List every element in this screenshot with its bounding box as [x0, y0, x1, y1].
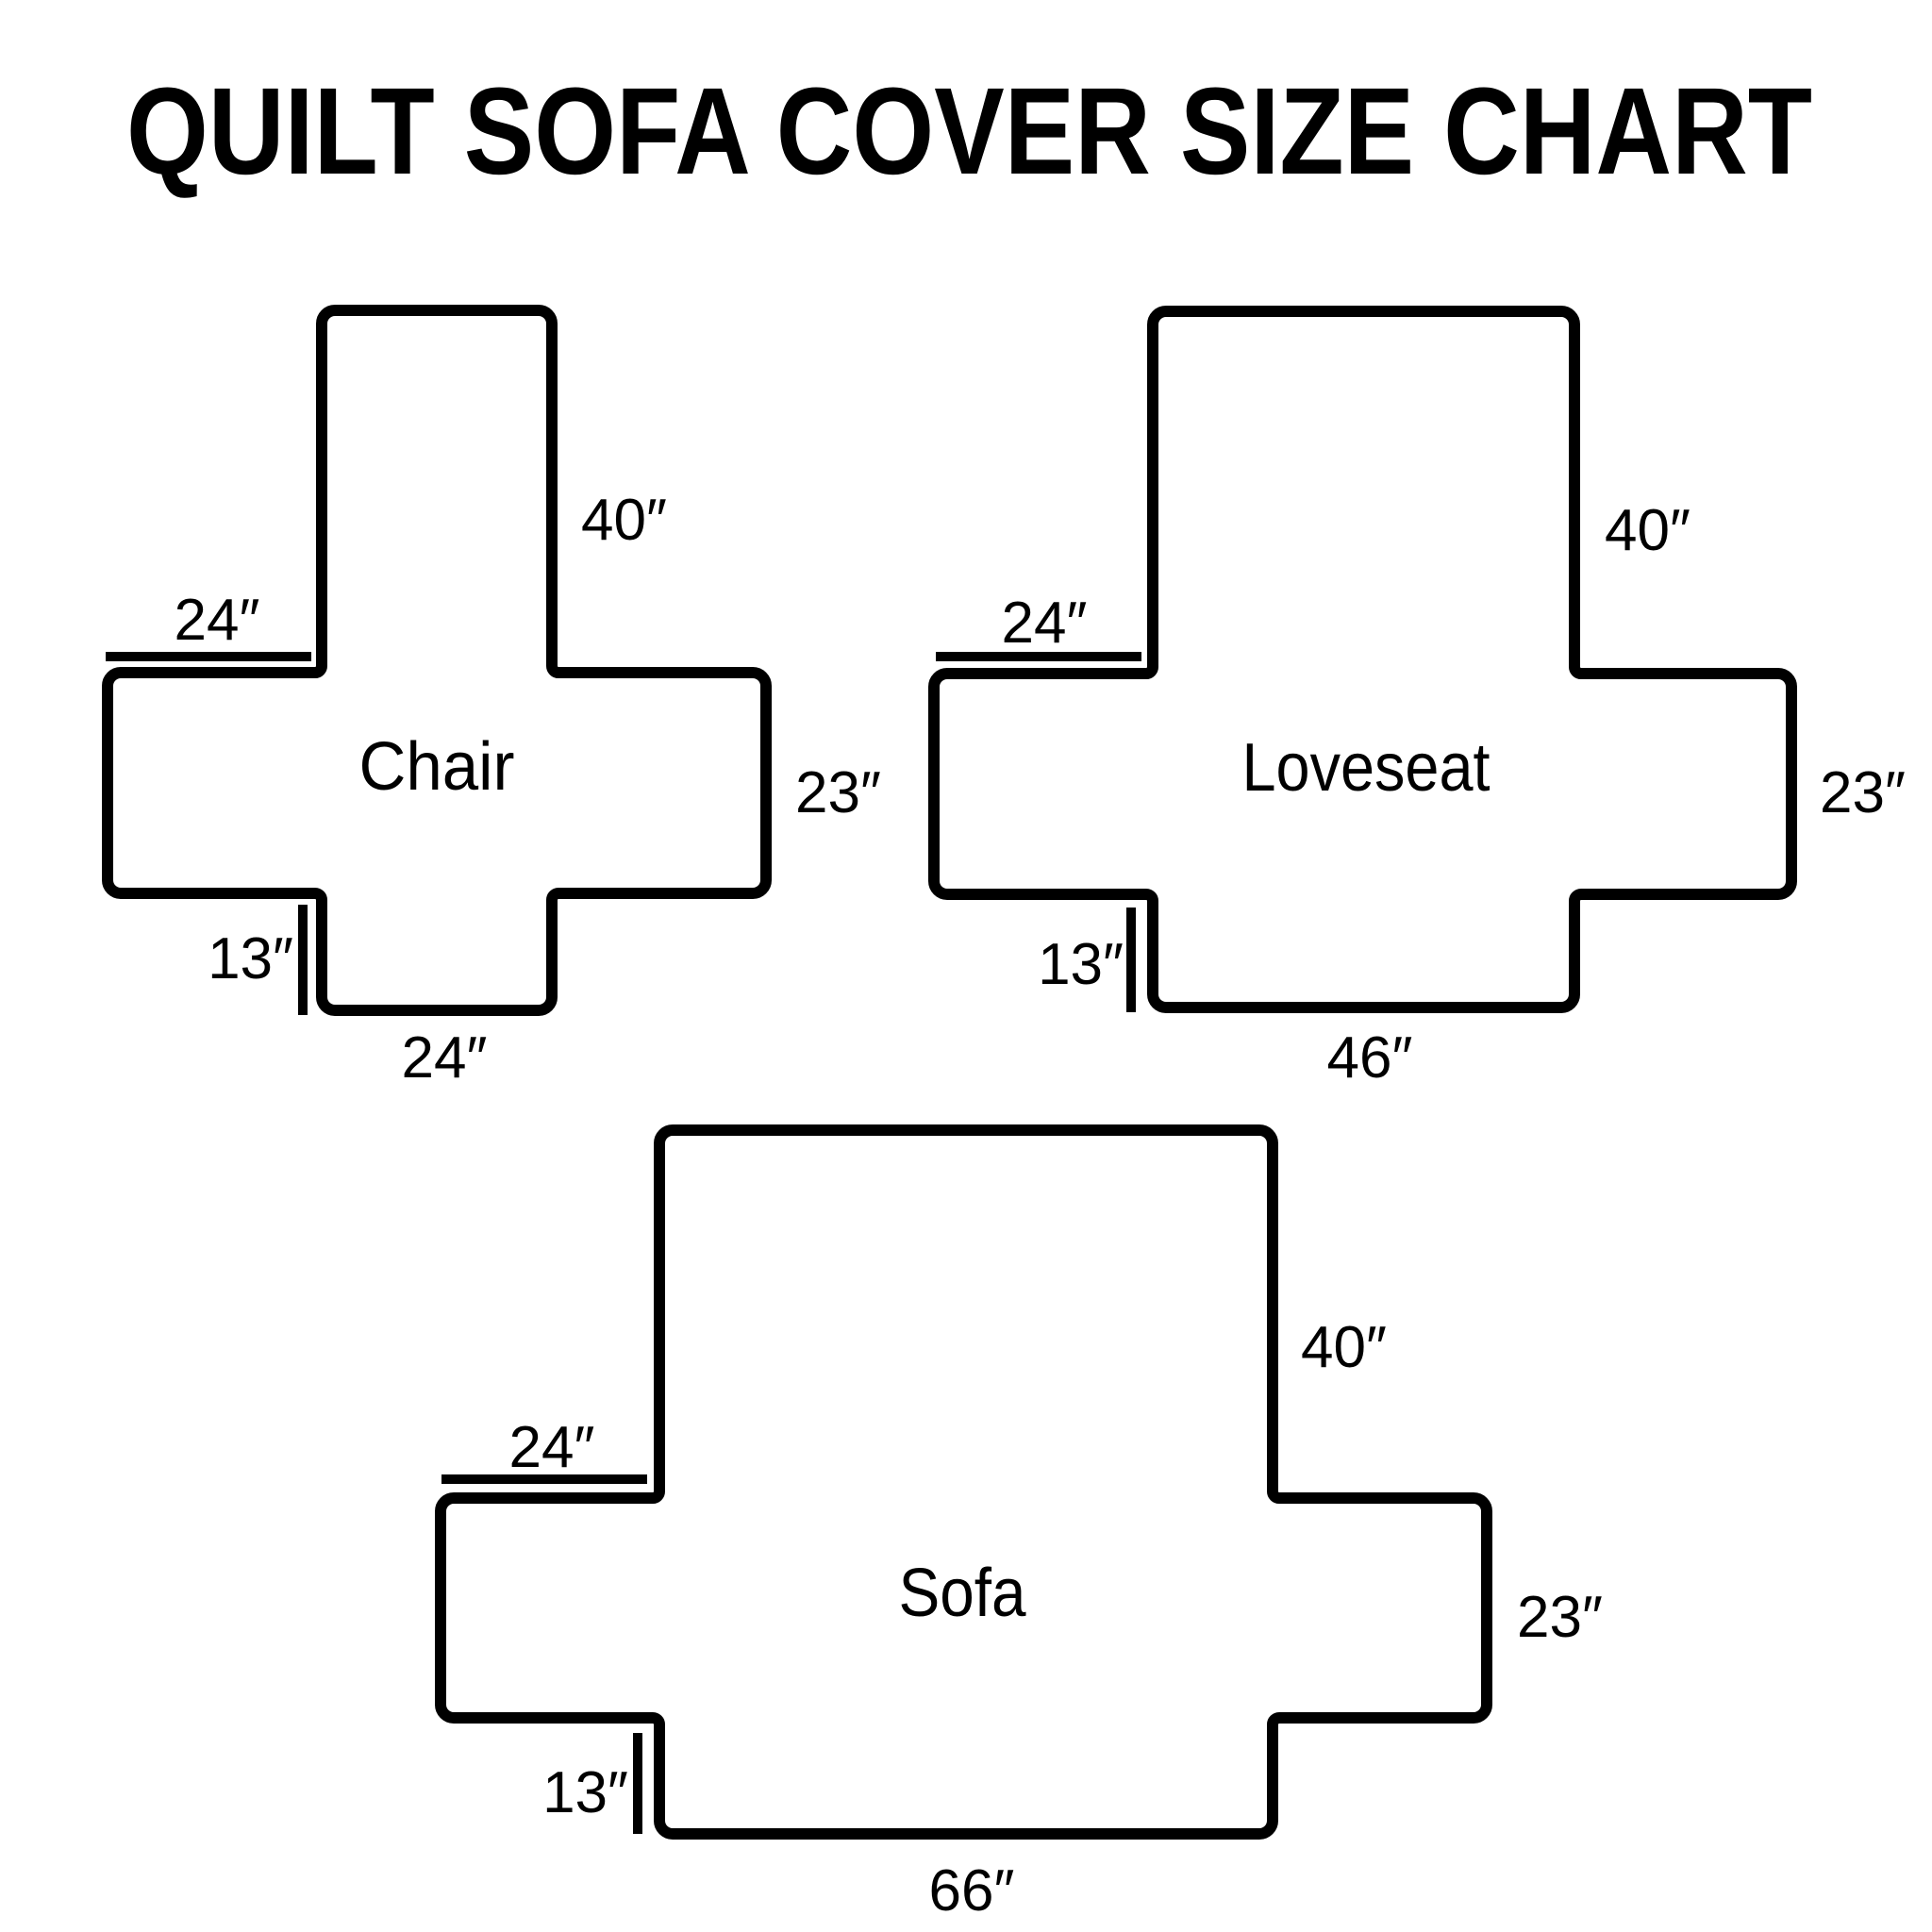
svg-text:Sofa: Sofa [899, 1556, 1027, 1631]
svg-text:24″: 24″ [509, 1415, 595, 1480]
svg-text:24″: 24″ [1002, 591, 1088, 656]
svg-text:24″: 24″ [175, 588, 260, 653]
svg-text:23″: 23″ [1820, 760, 1906, 825]
svg-text:40″: 40″ [1605, 498, 1690, 563]
svg-text:66″: 66″ [929, 1858, 1015, 1924]
svg-text:Chair: Chair [359, 729, 515, 805]
svg-text:13″: 13″ [208, 926, 293, 991]
svg-text:40″: 40″ [581, 488, 667, 553]
svg-text:46″: 46″ [1327, 1025, 1413, 1091]
svg-text:24″: 24″ [402, 1025, 488, 1091]
svg-text:23″: 23″ [1517, 1585, 1603, 1650]
svg-text:40″: 40″ [1301, 1315, 1387, 1380]
svg-text:13″: 13″ [1038, 932, 1124, 997]
svg-text:13″: 13″ [542, 1760, 628, 1825]
svg-text:23″: 23″ [795, 760, 881, 825]
svg-text:QUILT SOFA COVER SIZE CHART: QUILT SOFA COVER SIZE CHART [126, 61, 1812, 200]
svg-text:Loveseat: Loveseat [1242, 730, 1491, 806]
